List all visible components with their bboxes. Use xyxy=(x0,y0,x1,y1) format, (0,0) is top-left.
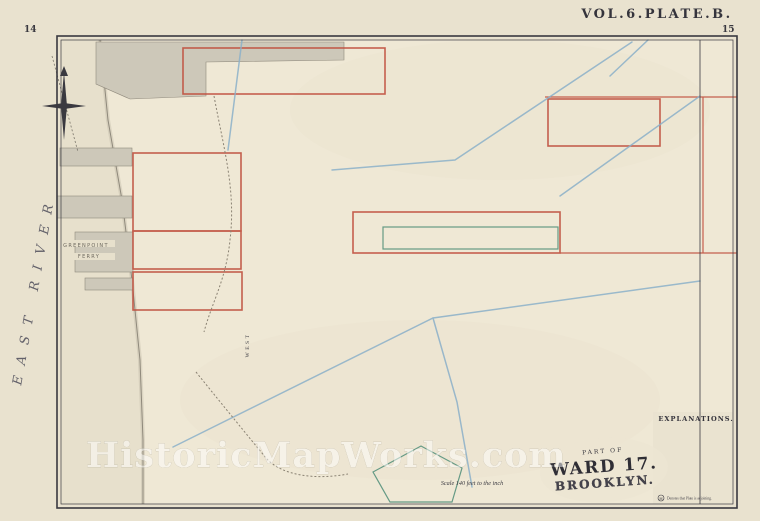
west-street-label: WEST xyxy=(245,333,251,358)
page-number-right: 15 xyxy=(722,25,735,35)
scale-label: Scale 140 feet to the inch xyxy=(441,480,503,487)
legend-note-symbol: H xyxy=(659,496,663,501)
ferry-label-line2: FERRY xyxy=(78,254,100,260)
page-number-left: 14 xyxy=(24,25,37,35)
scale-bar: Scale 140 feet to the inch xyxy=(441,480,503,487)
atlas-plate-page: EAST RIVER GREENPOINT FERRY WEST EXPLANA… xyxy=(0,0,760,521)
ferry-label-line1: GREENPOINT xyxy=(63,243,109,249)
legend-note-text: Denotes that Plate is adjoining. xyxy=(667,497,712,501)
map-canvas: EAST RIVER GREENPOINT FERRY WEST EXPLANA… xyxy=(0,0,760,521)
legend-title: EXPLANATIONS. xyxy=(658,415,733,423)
plate-title: VOL.6.PLATE.B. xyxy=(580,7,732,22)
watermark: HistoricMapWorks.com xyxy=(86,435,567,476)
